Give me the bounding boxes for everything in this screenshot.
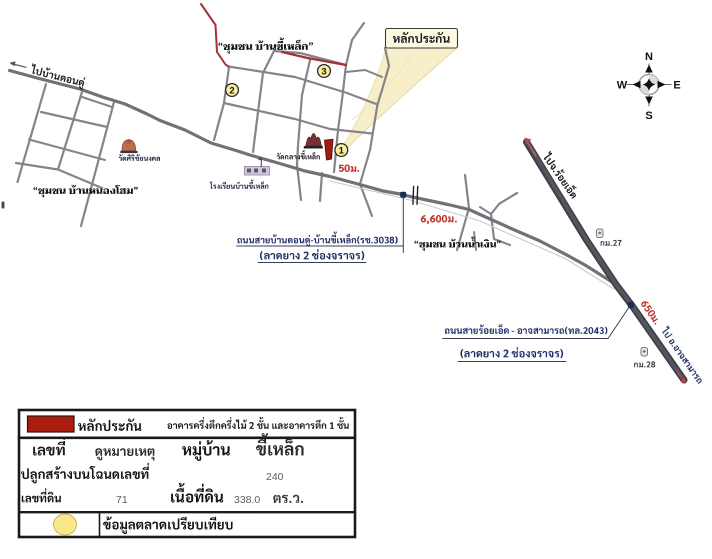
svg-text:240: 240 — [266, 471, 284, 483]
svg-text:W: W — [617, 79, 628, 91]
svg-text:1: 1 — [339, 145, 345, 156]
svg-text:N: N — [645, 51, 653, 63]
svg-text:338.0: 338.0 — [234, 494, 260, 506]
svg-text:S: S — [645, 110, 652, 122]
svg-text:E: E — [673, 79, 680, 91]
svg-text:3: 3 — [321, 66, 326, 77]
svg-text:71: 71 — [116, 494, 128, 506]
svg-text:2: 2 — [229, 85, 234, 96]
